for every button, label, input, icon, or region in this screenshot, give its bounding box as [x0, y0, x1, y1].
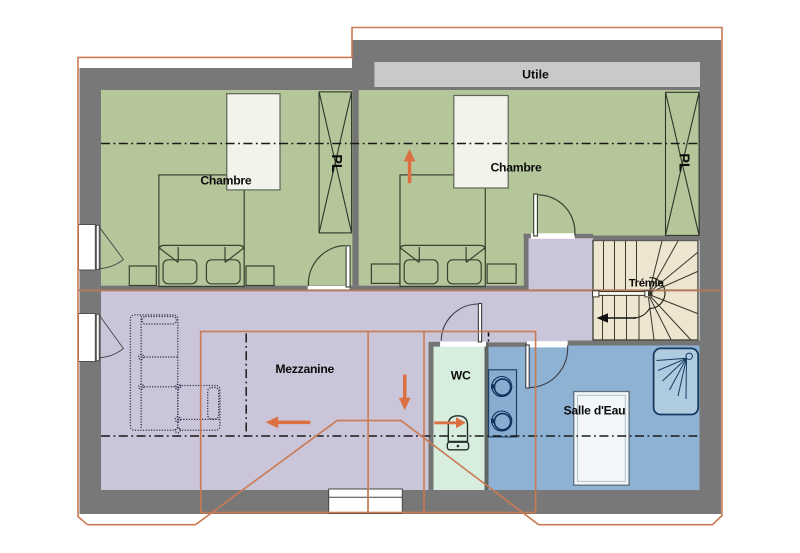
svg-text:PL: PL [676, 153, 692, 172]
svg-text:Chambre: Chambre [200, 174, 252, 188]
svg-text:Chambre: Chambre [490, 161, 542, 175]
svg-text:PL: PL [328, 154, 344, 173]
svg-text:Salle d'Eau: Salle d'Eau [564, 404, 626, 418]
svg-text:Mezzanine: Mezzanine [275, 362, 334, 376]
svg-text:WC: WC [451, 368, 471, 382]
svg-text:Utile: Utile [522, 68, 549, 82]
svg-text:Trémie: Trémie [629, 278, 664, 290]
